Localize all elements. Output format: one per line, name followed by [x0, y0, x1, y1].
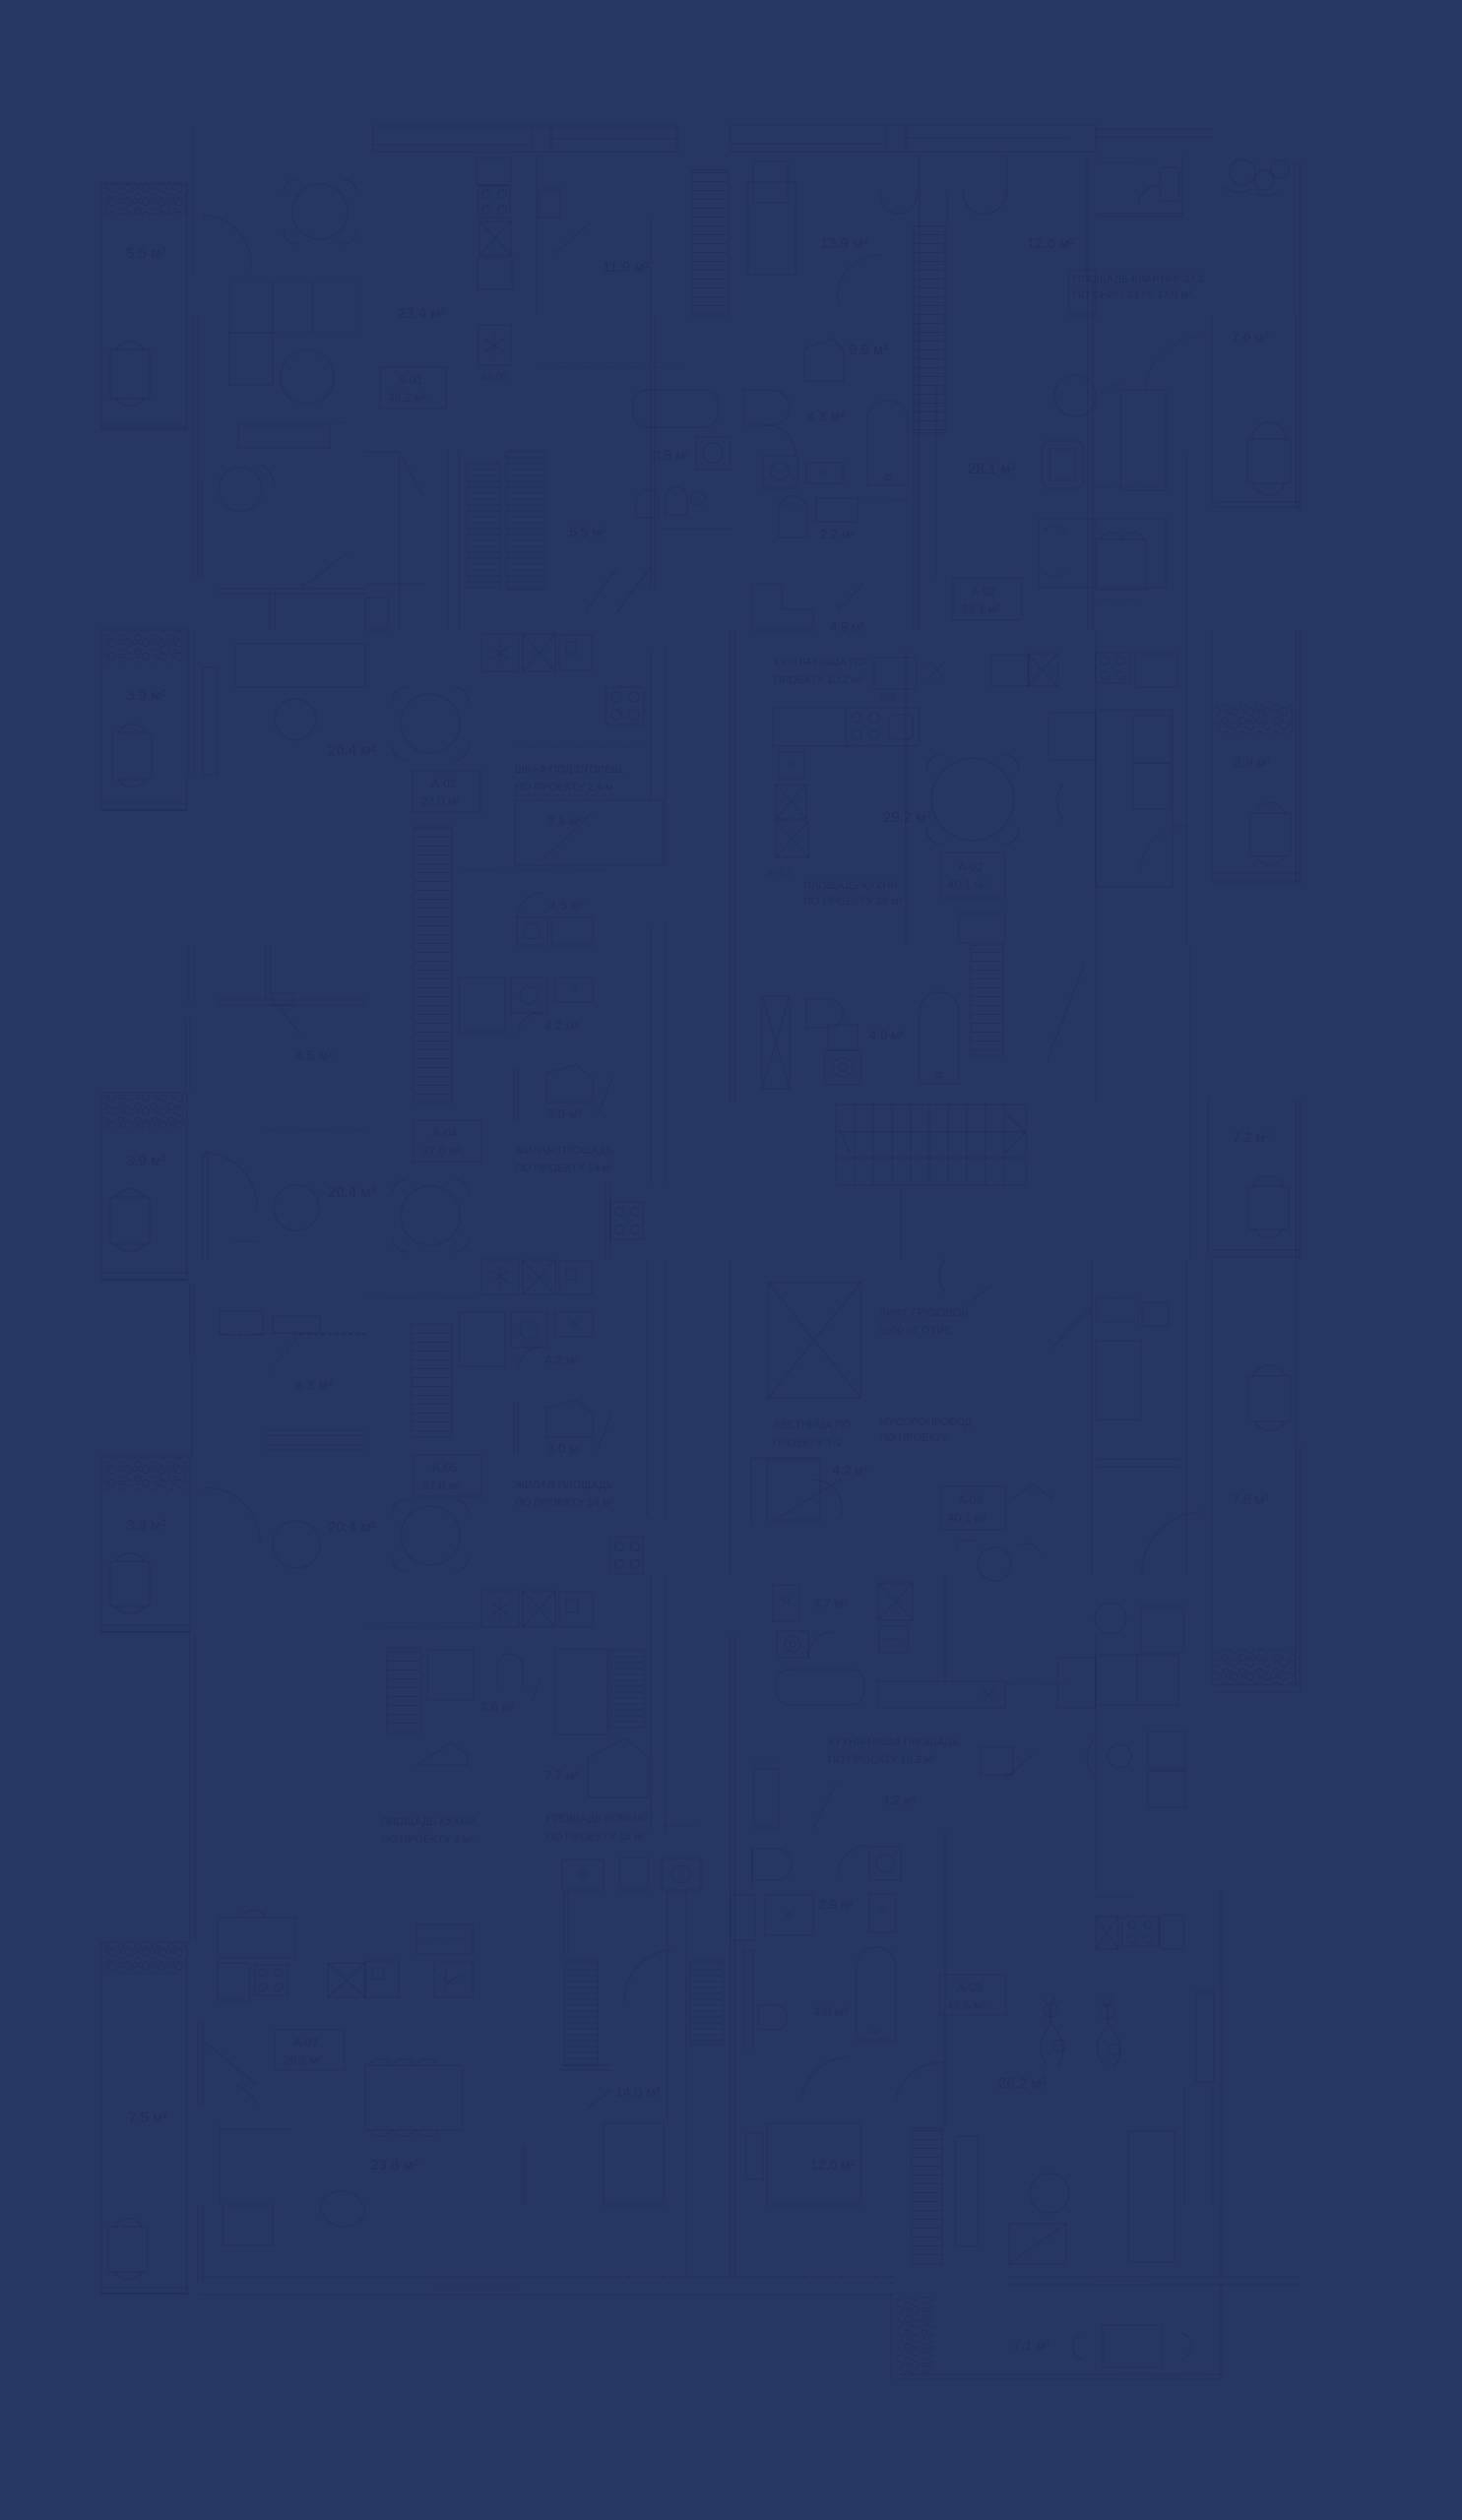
svg-text:28.1 м²: 28.1 м² [968, 461, 1016, 477]
svg-text:650: 650 [879, 693, 896, 704]
svg-text:ПО ПРОЕКТУ 29 м²: ПО ПРОЕКТУ 29 м² [803, 896, 902, 908]
svg-text:ПЛОЩАДЬ КУХНИ: ПЛОЩАДЬ КУХНИ [803, 880, 898, 892]
svg-text:А-03: А-03 [431, 777, 457, 790]
svg-text:14.0 м²: 14.0 м² [615, 2084, 661, 2100]
svg-text:40.1 м²: 40.1 м² [948, 878, 986, 892]
svg-text:5.5 м²: 5.5 м² [126, 245, 165, 262]
svg-text:2.9 м²: 2.9 м² [819, 1897, 855, 1912]
svg-text:3.9 м²: 3.9 м² [126, 1517, 165, 1534]
svg-text:ЖИЛАЯ ПЛОЩАДЬ: ЖИЛАЯ ПЛОЩАДЬ [515, 1480, 613, 1491]
svg-text:2.6 м²: 2.6 м² [480, 1699, 516, 1714]
svg-text:7.7 м²: 7.7 м² [544, 1768, 580, 1783]
svg-text:3.8 м²: 3.8 м² [653, 447, 690, 463]
svg-text:5.5 м²: 5.5 м² [569, 524, 606, 539]
svg-text:20.4 м²: 20.4 м² [328, 1184, 376, 1201]
svg-text:1000 КГ ОТИС: 1000 КГ ОТИС [879, 1325, 952, 1337]
svg-text:7.5 м²: 7.5 м² [128, 2110, 167, 2126]
svg-text:А-01: А-01 [398, 373, 423, 387]
svg-text:ПО ПРОЕКТУ 2.4 м: ПО ПРОЕКТУ 2.4 м [515, 782, 613, 793]
svg-text:29.2 м²: 29.2 м² [883, 809, 931, 826]
svg-text:7.6 м²: 7.6 м² [1232, 329, 1269, 345]
svg-text:КУХНЯ-НИША ПО: КУХНЯ-НИША ПО [774, 657, 866, 668]
svg-text:4.0 м²: 4.0 м² [869, 1028, 905, 1042]
svg-text:4.5 м²: 4.5 м² [549, 898, 585, 913]
svg-text:ПО ПРОЕКТУ 18 м²: ПО ПРОЕКТУ 18 м² [546, 1831, 645, 1843]
svg-text:20.4 м²: 20.4 м² [328, 742, 376, 759]
svg-text:3.9 м²: 3.9 м² [126, 687, 165, 704]
svg-text:7.2 м²: 7.2 м² [1233, 1129, 1270, 1145]
svg-text:ПЛОЩАДЬ КОМНАТ: ПЛОЩАДЬ КОМНАТ [546, 1813, 650, 1825]
svg-text:4.2 м²: 4.2 м² [882, 1793, 918, 1807]
svg-text:2.2 м²: 2.2 м² [820, 527, 856, 541]
svg-text:А-02: А-02 [971, 585, 996, 598]
svg-text:23.4 м²: 23.4 м² [398, 305, 446, 322]
svg-text:12.6 м²: 12.6 м² [1027, 235, 1075, 252]
svg-text:13.9 м²: 13.9 м² [820, 235, 868, 252]
svg-text:ПО ПРОЕКТУ 14 м²: ПО ПРОЕКТУ 14 м² [515, 1497, 613, 1509]
svg-text:4.9 м²: 4.9 м² [830, 619, 865, 634]
svg-text:26.2 м²: 26.2 м² [284, 2053, 322, 2067]
svg-text:ПО ПРОЕКТУ 10.2 м²: ПО ПРОЕКТУ 10.2 м² [828, 1754, 936, 1766]
svg-text:37.0 м²: 37.0 м² [422, 1144, 461, 1158]
svg-text:ЛИФТ ГРУЗОВОЙ: ЛИФТ ГРУЗОВОЙ [879, 1306, 969, 1319]
svg-text:А-05: А-05 [432, 1461, 458, 1475]
svg-text:ЖИЛАЯ ПЛОЩАДЬ: ЖИЛАЯ ПЛОЩАДЬ [515, 1145, 613, 1157]
svg-text:±0.00: ±0.00 [482, 371, 507, 382]
svg-text:ПО ПРОЕКТУ: ПО ПРОЕКТУ [879, 1432, 950, 1444]
svg-text:9.9 м²: 9.9 м² [849, 342, 888, 358]
svg-text:7.6 м²: 7.6 м² [1232, 1491, 1269, 1507]
svg-text:45.2 м²: 45.2 м² [388, 391, 426, 405]
svg-text:А-04: А-04 [432, 1126, 458, 1140]
svg-text:МУСОРОПРОВОД: МУСОРОПРОВОД [879, 1417, 973, 1428]
svg-text:ПЛОЩАДЬ КУХНИ: ПЛОЩАДЬ КУХНИ [381, 1816, 476, 1828]
svg-text:ПО ПРОЕКТУ 14 м²: ПО ПРОЕКТУ 14 м² [515, 1163, 613, 1174]
svg-text:4.2 м²: 4.2 м² [544, 1018, 580, 1033]
svg-text:4.2 м²: 4.2 м² [833, 1463, 868, 1478]
svg-text:27.0 м²: 27.0 м² [421, 794, 460, 808]
svg-text:3.9 м²: 3.9 м² [126, 1153, 165, 1169]
svg-text:11.9 м²: 11.9 м² [603, 259, 650, 276]
svg-text:3.9 м²: 3.9 м² [547, 813, 583, 828]
svg-text:6.3 м²: 6.3 м² [295, 1377, 333, 1393]
svg-text:4.7 м²: 4.7 м² [813, 1596, 849, 1610]
svg-text:7.1 м²: 7.1 м² [1013, 2337, 1050, 2353]
svg-text:43.5 м²: 43.5 м² [947, 1998, 985, 2012]
svg-text:26.2 м²: 26.2 м² [998, 2075, 1047, 2092]
svg-text:4.3 м²: 4.3 м² [807, 409, 845, 424]
svg-text:20.4 м²: 20.4 м² [328, 1519, 376, 1536]
svg-text:КУХНЯ-НИША ПЛОЩАДЬ: КУХНЯ-НИША ПЛОЩАДЬ [828, 1736, 959, 1748]
svg-text:А-08: А-08 [957, 1981, 983, 1994]
svg-text:ПРОЕКТУ Т-2: ПРОЕКТУ Т-2 [773, 1437, 843, 1449]
svg-text:3.0 м²: 3.0 м² [547, 1106, 583, 1121]
svg-text:4.0 м²: 4.0 м² [813, 2004, 849, 2019]
svg-text:ПО ПРОЕКТУ 9 м²: ПО ПРОЕКТУ 9 м² [381, 1834, 474, 1846]
svg-text:ПРОЕКТУ 10.2 м²: ПРОЕКТУ 10.2 м² [774, 674, 862, 686]
svg-text:4.5 м²: 4.5 м² [295, 1047, 333, 1063]
svg-text:23.8 м²: 23.8 м² [370, 2157, 418, 2173]
svg-text:3.9 м²: 3.9 м² [1234, 754, 1271, 770]
svg-text:ЛЕСТНИЦА ПО: ЛЕСТНИЦА ПО [773, 1419, 852, 1431]
svg-text:А-06: А-06 [958, 1493, 984, 1507]
svg-text:ШКАФ ПОД СТОЛЕШ.: ШКАФ ПОД СТОЛЕШ. [515, 764, 625, 776]
svg-text:4.2 м²: 4.2 м² [544, 1353, 580, 1367]
svg-text:А-02: А-02 [958, 860, 984, 874]
svg-text:28.1 м²: 28.1 м² [962, 602, 1000, 616]
svg-text:37.0 м²: 37.0 м² [422, 1479, 461, 1492]
svg-text:12.0 м²: 12.0 м² [810, 2157, 856, 2173]
svg-text:А-07: А-07 [293, 2036, 319, 2049]
svg-text:h=2.7: h=2.7 [767, 868, 793, 879]
svg-text:3.0 м²: 3.0 м² [547, 1441, 583, 1456]
svg-text:ПО СНИП 23.05 37.0 м²: ПО СНИП 23.05 37.0 м² [1073, 289, 1192, 301]
svg-text:40.1 м²: 40.1 м² [948, 1511, 986, 1525]
